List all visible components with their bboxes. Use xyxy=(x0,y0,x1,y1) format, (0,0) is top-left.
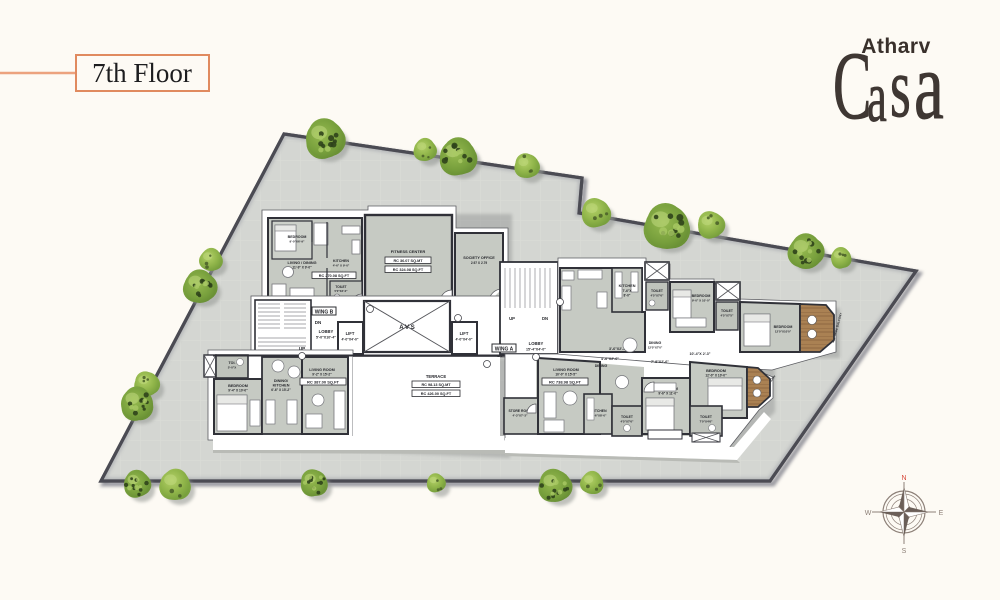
svg-text:9'-4" X 10'-0": 9'-4" X 10'-0" xyxy=(228,389,248,393)
svg-text:12'0"X10'0": 12'0"X10'0" xyxy=(775,330,792,334)
svg-text:KITCHEN: KITCHEN xyxy=(273,384,290,388)
svg-text:LIVING ROOM: LIVING ROOM xyxy=(553,368,579,372)
svg-text:FITNESS CENTER: FITNESS CENTER xyxy=(391,249,426,254)
svg-text:7'-6"X: 7'-6"X xyxy=(622,289,632,293)
svg-text:KITCHEN: KITCHEN xyxy=(333,259,349,263)
svg-text:DN: DN xyxy=(315,320,322,325)
svg-text:6'-6" X 15'-2": 6'-6" X 15'-2" xyxy=(271,388,291,392)
svg-text:4'5"X7'6": 4'5"X7'6" xyxy=(651,294,665,298)
svg-text:TOILET: TOILET xyxy=(651,289,664,293)
svg-text:7'-8"X2'-6": 7'-8"X2'-6" xyxy=(651,360,669,364)
svg-text:BEDROOM: BEDROOM xyxy=(288,235,307,239)
svg-text:12'-0" X 10'-0": 12'-0" X 10'-0" xyxy=(705,374,727,378)
svg-text:BEDROOM: BEDROOM xyxy=(692,294,711,298)
svg-text:RC 98.13 SQ.MT: RC 98.13 SQ.MT xyxy=(421,383,451,387)
svg-text:DINING: DINING xyxy=(649,341,662,345)
svg-text:TOILET: TOILET xyxy=(621,415,634,419)
svg-text:A V S: A V S xyxy=(399,325,414,331)
svg-text:9'-6" X 11'-0": 9'-6" X 11'-0" xyxy=(658,392,678,396)
svg-text:DINING: DINING xyxy=(595,364,608,368)
svg-text:4'5"X7'6": 4'5"X7'6" xyxy=(621,420,635,424)
svg-text:RC 36.07 SQ.MT: RC 36.07 SQ.MT xyxy=(393,259,423,263)
svg-text:W: W xyxy=(865,510,872,517)
svg-text:9'-2" X 15'-2": 9'-2" X 15'-2" xyxy=(312,373,332,377)
svg-text:12'0"X7'0": 12'0"X7'0" xyxy=(648,346,663,350)
svg-text:LIFT: LIFT xyxy=(346,331,355,336)
svg-text:s: s xyxy=(890,40,911,135)
svg-text:TOILET: TOILET xyxy=(721,309,734,313)
svg-text:RC 426.00 SQ.FT: RC 426.00 SQ.FT xyxy=(421,392,452,396)
svg-text:SOCIETY OFFICE: SOCIETY OFFICE xyxy=(463,256,495,260)
svg-text:WING A: WING A xyxy=(495,347,514,353)
svg-text:UP: UP xyxy=(509,316,515,321)
svg-text:9'-0"X6'-9": 9'-0"X6'-9" xyxy=(290,240,306,244)
svg-text:TOILET: TOILET xyxy=(700,415,713,419)
svg-text:DINING/: DINING/ xyxy=(274,379,289,383)
svg-text:10'-4"X 2'-3": 10'-4"X 2'-3" xyxy=(690,352,711,356)
svg-text:E: E xyxy=(939,510,944,517)
svg-text:RC 738.98 SQ.FT: RC 738.98 SQ.FT xyxy=(549,380,582,385)
svg-text:4'-6"X2'-6": 4'-6"X2'-6" xyxy=(601,357,619,361)
svg-text:LIVING ROOM: LIVING ROOM xyxy=(309,368,335,372)
svg-text:S: S xyxy=(902,548,907,555)
svg-text:5'-0"X: 5'-0"X xyxy=(228,366,236,370)
svg-text:7th Floor: 7th Floor xyxy=(92,58,192,88)
svg-text:a: a xyxy=(914,32,944,139)
svg-text:N: N xyxy=(901,475,906,482)
svg-text:RC 270.08 SQ.FT: RC 270.08 SQ.FT xyxy=(319,274,350,278)
svg-text:LOBBY: LOBBY xyxy=(529,341,544,346)
svg-text:8'-0": 8'-0" xyxy=(624,294,631,298)
svg-text:DN: DN xyxy=(542,316,548,321)
svg-text:LIFT: LIFT xyxy=(460,331,469,336)
svg-text:2.97 X 2.79: 2.97 X 2.79 xyxy=(471,261,488,265)
svg-text:10'-0" X 15'-5": 10'-0" X 15'-5" xyxy=(555,373,577,377)
svg-text:4'-0"X4'-0": 4'-0"X4'-0" xyxy=(342,338,359,342)
svg-text:LOBBY: LOBBY xyxy=(319,329,334,334)
svg-text:TOI.: TOI. xyxy=(229,361,236,365)
svg-text:KITCHEN: KITCHEN xyxy=(619,284,636,288)
svg-text:a: a xyxy=(867,57,887,136)
svg-text:4'-6" X 9'-0": 4'-6" X 9'-0" xyxy=(333,264,350,268)
svg-text:9'-0" X 10'-0": 9'-0" X 10'-0" xyxy=(692,299,711,303)
svg-text:7'0"X4'6": 7'0"X4'6" xyxy=(700,420,714,424)
svg-text:4'-0"X4'-0": 4'-0"X4'-0" xyxy=(456,338,473,342)
svg-text:BEDROOM: BEDROOM xyxy=(228,384,248,388)
svg-text:15'-4"X4'-0": 15'-4"X4'-0" xyxy=(526,348,546,352)
svg-text:5'-0"X10'-4": 5'-0"X10'-4" xyxy=(316,336,336,340)
svg-text:4'-3"X7'-3": 4'-3"X7'-3" xyxy=(513,414,529,418)
svg-text:LIVING / DINING: LIVING / DINING xyxy=(287,261,316,265)
svg-text:TERRACE: TERRACE xyxy=(426,374,446,379)
svg-text:11'-9" X 9'-0": 11'-9" X 9'-0" xyxy=(292,266,312,270)
svg-text:5'0"X3'-0": 5'0"X3'-0" xyxy=(334,289,348,293)
svg-text:WING B: WING B xyxy=(315,310,334,316)
svg-text:4'5"X7'5": 4'5"X7'5" xyxy=(721,314,735,318)
svg-text:C: C xyxy=(833,33,869,140)
svg-text:BEDROOM: BEDROOM xyxy=(774,325,793,329)
svg-text:BEDROOM: BEDROOM xyxy=(706,369,726,373)
svg-text:RC 387.00 SQ.FT: RC 387.00 SQ.FT xyxy=(307,380,340,385)
svg-text:RC 324.08 SQ.FT: RC 324.08 SQ.FT xyxy=(393,268,424,272)
